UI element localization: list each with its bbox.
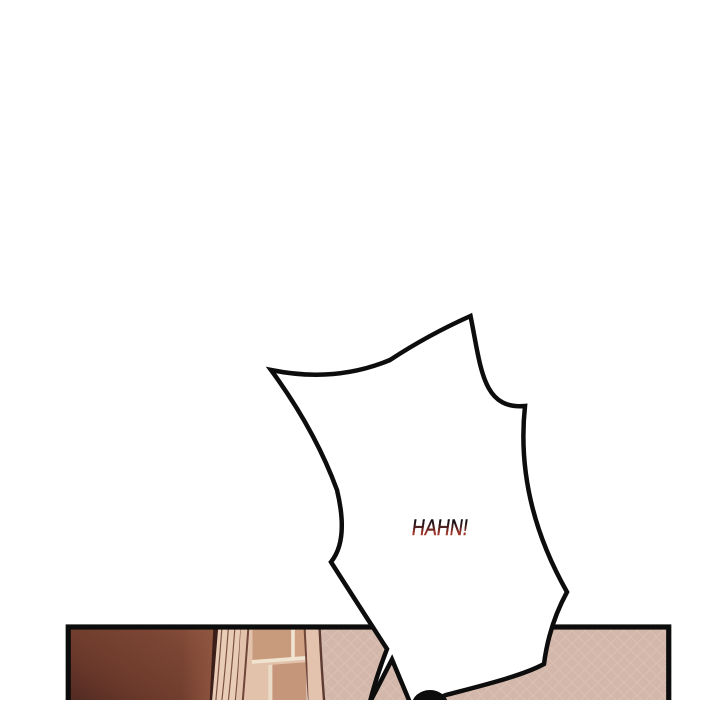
svg-text:HAHN!: HAHN! xyxy=(410,515,469,540)
